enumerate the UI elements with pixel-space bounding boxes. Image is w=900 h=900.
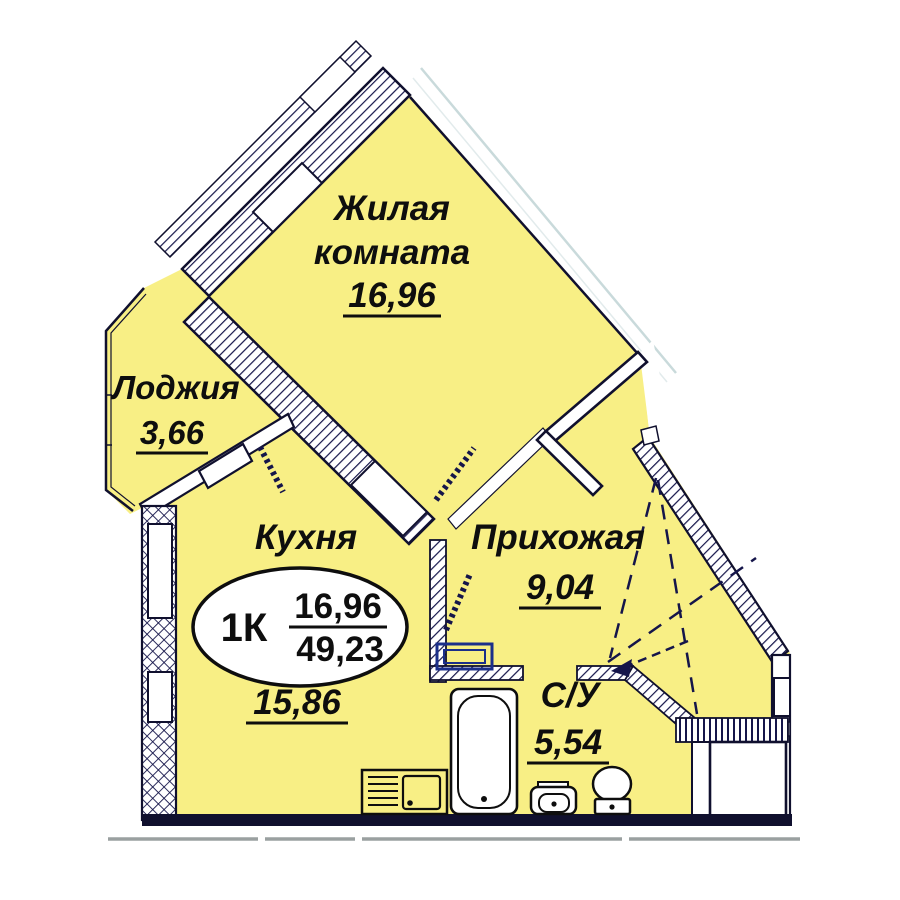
stove-sink-counter	[362, 770, 447, 814]
living-room-label-2: комната	[314, 233, 470, 272]
living-room-label-1: Жилая	[332, 189, 450, 228]
toilet	[593, 767, 631, 814]
flush-dot	[609, 804, 614, 809]
sink	[531, 782, 576, 814]
bottom-wall	[142, 814, 792, 826]
bathtub	[451, 689, 517, 814]
summary-living-area: 16,96	[294, 587, 382, 626]
wall-notch	[641, 426, 659, 445]
floor-plan-canvas: Жилая комната 16,96 Лоджия 3,66 Кухня 15…	[0, 0, 900, 900]
bathtub-inner	[458, 696, 510, 808]
niche	[774, 678, 790, 716]
loggia-area: 3,66	[140, 414, 205, 451]
loggia-label: Лоджия	[110, 369, 239, 406]
drain-dot	[407, 800, 413, 806]
shaft-top-wall	[676, 718, 788, 742]
apartment-type: 1К	[221, 606, 268, 650]
bathroom-area: 5,54	[534, 723, 602, 762]
hallway-label: Прихожая	[471, 518, 645, 557]
hallway-area: 9,04	[526, 568, 594, 607]
shaft-left-wall	[692, 742, 710, 816]
bathroom-label: С/У	[541, 676, 602, 715]
summary-total-area: 49,23	[296, 630, 384, 669]
summary-oval: 1К 16,96 49,23	[193, 568, 407, 686]
shaft	[710, 742, 786, 816]
living-room-area: 16,96	[348, 276, 436, 315]
kitchen-left-wall	[142, 506, 176, 820]
kitchen-label: Кухня	[255, 518, 357, 557]
toilet-bowl	[593, 767, 631, 801]
shaft-block	[676, 718, 788, 816]
window-block	[148, 672, 172, 722]
apartment-floor-area	[106, 68, 790, 820]
drain-dot	[551, 801, 556, 806]
window-block	[148, 524, 172, 618]
kitchen-area: 15,86	[253, 683, 341, 722]
floor-plan-svg: Жилая комната 16,96 Лоджия 3,66 Кухня 15…	[0, 0, 900, 900]
drain-dot	[481, 796, 487, 802]
